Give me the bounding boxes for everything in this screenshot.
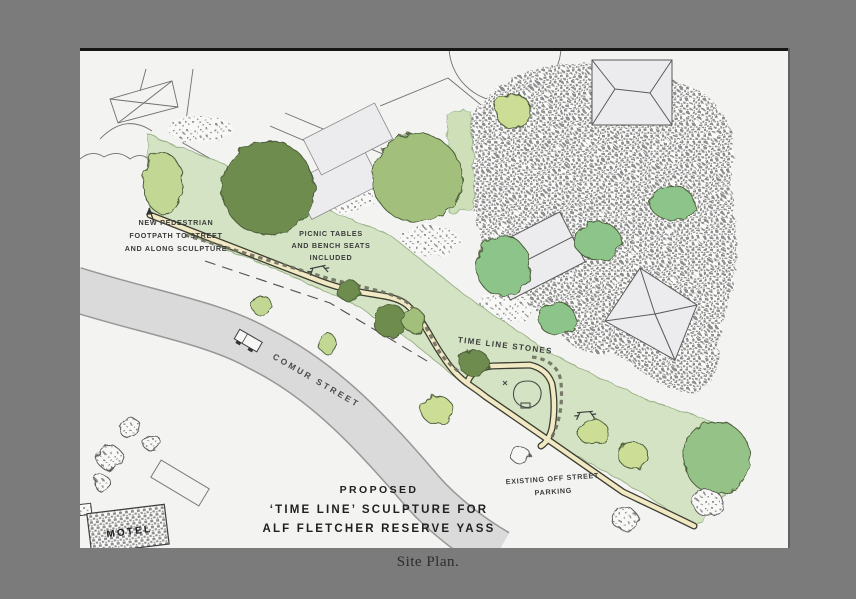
tree	[459, 350, 489, 376]
tree	[684, 422, 750, 494]
tree	[476, 236, 530, 296]
parking-note-line1: EXISTING OFF STREET	[505, 471, 599, 487]
tree	[222, 141, 314, 235]
shrub	[318, 333, 336, 353]
shrub	[403, 309, 425, 333]
motel-building: MOTEL	[80, 494, 169, 548]
parking-note-line2: PARKING	[534, 486, 572, 498]
shrub	[252, 296, 272, 316]
footpath-note-line2: FOOTPATH TO STREET	[129, 231, 222, 240]
tree	[495, 94, 531, 128]
site-plan-svg: MOTEL NEW PEDESTRIAN FOOTPATH TO STREET …	[80, 51, 788, 548]
title-line3: ALF FLETCHER RESERVE YASS	[262, 523, 495, 535]
shrub	[578, 419, 608, 445]
footpath-note-line3: AND ALONG SCULPTURE	[125, 244, 227, 253]
picnic-note-line3: INCLUDED	[310, 253, 353, 262]
shrub	[618, 442, 648, 468]
drawing-title: PROPOSED ‘TIME LINE’ SCULPTURE FOR ALF F…	[262, 484, 495, 535]
title-line2: ‘TIME LINE’ SCULPTURE FOR	[270, 504, 489, 516]
figure-caption: Site Plan.	[0, 554, 856, 571]
tree	[539, 302, 575, 336]
shrub	[421, 396, 453, 424]
picnic-note-line2: AND BENCH SEATS	[291, 241, 370, 250]
shrub	[374, 304, 406, 338]
building-hip-roof-top-right	[592, 60, 672, 125]
parking-bay-sketch	[151, 460, 209, 506]
tree	[372, 134, 462, 222]
footpath-note-line1: NEW PEDESTRIAN	[139, 218, 214, 227]
shrub	[336, 280, 360, 300]
tree	[650, 186, 694, 220]
site-plan-scan: MOTEL NEW PEDESTRIAN FOOTPATH TO STREET …	[80, 48, 788, 548]
picnic-note-line1: PICNIC TABLES	[299, 229, 363, 238]
tree	[575, 222, 621, 260]
tree	[143, 153, 183, 213]
tree-bottom-right	[684, 422, 750, 494]
title-line1: PROPOSED	[340, 484, 419, 496]
